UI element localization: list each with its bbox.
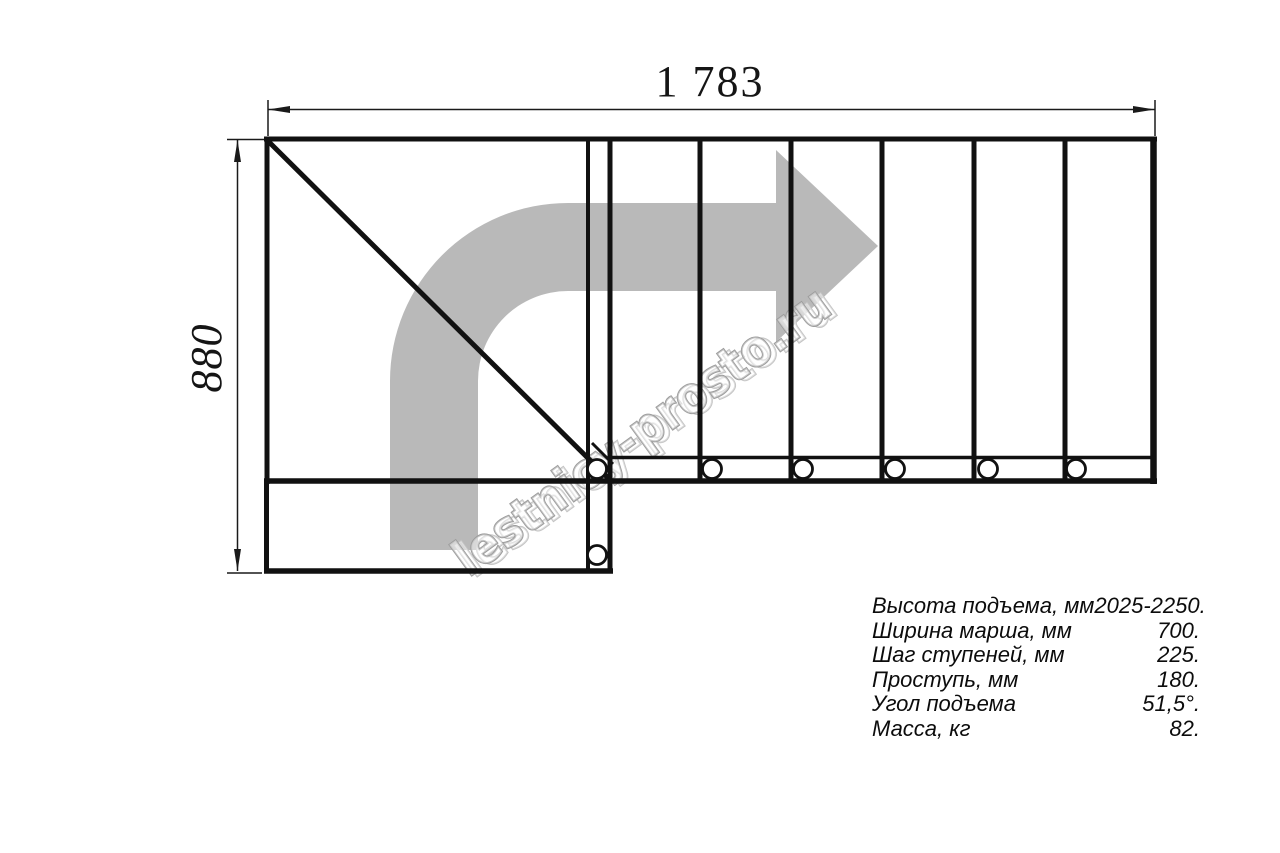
spec-row-angle: Угол подъема 51,5°.: [872, 692, 1200, 717]
spec-label: Ширина марша, мм: [872, 619, 1072, 644]
dim-arrowhead-right-icon: [1133, 106, 1155, 113]
dim-arrowhead-left-icon: [268, 106, 290, 113]
watermark: lestnicy-prosto.ru lestnicy-prosto.ru: [442, 273, 847, 591]
bolt-hole-1: [703, 460, 722, 479]
spec-label: Масса, кг: [872, 717, 971, 742]
bolt-holes: [588, 460, 1086, 565]
dimension-left: 880: [182, 140, 264, 574]
spec-label: Проступь, мм: [872, 668, 1018, 693]
dimension-left-value: 880: [182, 324, 231, 393]
spec-label: Шаг ступеней, мм: [872, 643, 1065, 668]
spec-value: 2025-2250.: [1094, 594, 1205, 619]
spec-label: Высота подъема, мм: [872, 594, 1094, 619]
spec-row-height: Высота подъема, мм 2025-2250.: [872, 594, 1200, 619]
watermark-text: lestnicy-prosto.ru: [442, 275, 842, 588]
spec-value: 180.: [1157, 668, 1200, 693]
spec-row-flight-width: Ширина марша, мм 700.: [872, 619, 1200, 644]
bolt-hole-entry: [588, 546, 607, 565]
spec-row-tread: Проступь, мм 180.: [872, 668, 1200, 693]
staircase-drawing-page: lestnicy-prosto.ru lestnicy-prosto.ru: [0, 0, 1280, 853]
specs-table: Высота подъема, мм 2025-2250. Ширина мар…: [872, 594, 1200, 741]
spec-row-mass: Масса, кг 82.: [872, 717, 1200, 742]
spec-value: 51,5°.: [1142, 692, 1200, 717]
spec-value: 225.: [1157, 643, 1200, 668]
spec-row-step-pitch: Шаг ступеней, мм 225.: [872, 643, 1200, 668]
bolt-hole-corner: [588, 460, 607, 479]
bolt-hole-5: [1067, 460, 1086, 479]
bolt-hole-4: [979, 460, 998, 479]
dim-arrowhead-up-icon: [234, 140, 241, 162]
bolt-hole-3: [886, 460, 905, 479]
spec-label: Угол подъема: [872, 692, 1016, 717]
dimension-top: 1 783: [268, 57, 1155, 136]
dim-arrowhead-down-icon: [234, 549, 241, 571]
dimension-top-value: 1 783: [656, 57, 765, 106]
spec-value: 700.: [1157, 619, 1200, 644]
spec-value: 82.: [1169, 717, 1200, 742]
bolt-hole-2: [794, 460, 813, 479]
